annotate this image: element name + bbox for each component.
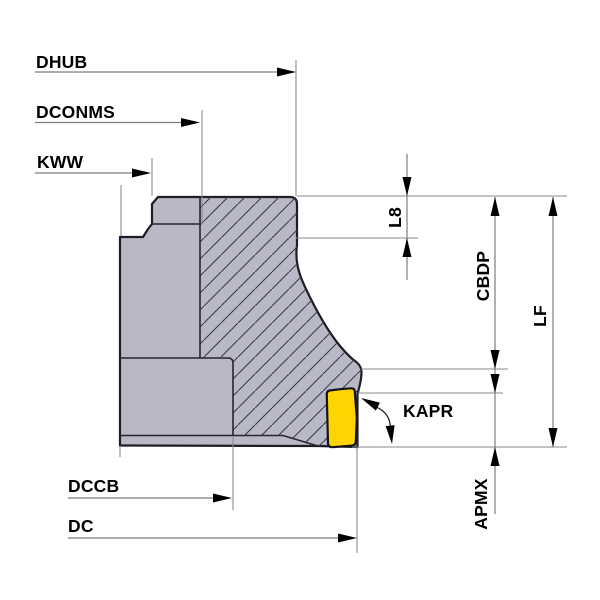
dconms-arrow — [181, 118, 200, 127]
dhub-dimension: DHUB — [35, 52, 296, 196]
cbdp-label: CBDP — [473, 251, 493, 302]
kapr-label: KAPR — [403, 401, 454, 421]
lf-arrow-up — [549, 197, 558, 216]
cbdp-arrow-down — [491, 350, 500, 369]
l8-arrow-down — [403, 177, 412, 196]
kww-dimension: KWW — [35, 152, 152, 236]
technical-drawing-canvas: DHUB DCONMS KWW L8 CBDP APMX — [0, 0, 600, 600]
kww-label: KWW — [37, 152, 84, 172]
dconms-label: DCONMS — [36, 102, 115, 122]
kapr-arrow-lower — [386, 425, 395, 444]
dhub-label: DHUB — [36, 52, 87, 72]
dccb-label: DCCB — [68, 476, 119, 496]
l8-arrow-up — [403, 238, 412, 257]
kww-arrow — [132, 169, 151, 178]
apmx-dimension: APMX — [352, 374, 567, 530]
kapr-dimension: KAPR — [361, 398, 454, 444]
insert-group — [327, 388, 357, 447]
l8-label: L8 — [385, 207, 405, 228]
cutting-insert — [327, 388, 357, 447]
dccb-arrow — [213, 494, 232, 503]
lf-label: LF — [530, 305, 550, 327]
dc-arrow — [338, 534, 357, 543]
lf-dimension: LF — [530, 197, 558, 447]
apmx-arrow-up — [491, 447, 500, 466]
cutter-body-group — [120, 197, 362, 447]
dc-dimension: DC — [68, 446, 357, 553]
l8-dimension: L8 — [296, 154, 567, 280]
dccb-dimension: DCCB — [68, 437, 233, 510]
lf-arrow-down — [549, 428, 558, 447]
cbdp-dimension: CBDP — [361, 197, 508, 514]
apmx-arrow-down — [491, 374, 500, 393]
kapr-arrow-upper — [361, 398, 380, 411]
dc-label: DC — [68, 516, 94, 536]
face-mill-drawing: DHUB DCONMS KWW L8 CBDP APMX — [0, 0, 600, 600]
cbdp-arrow-up — [491, 197, 500, 216]
apmx-label: APMX — [471, 478, 491, 529]
dhub-arrow — [277, 68, 296, 77]
